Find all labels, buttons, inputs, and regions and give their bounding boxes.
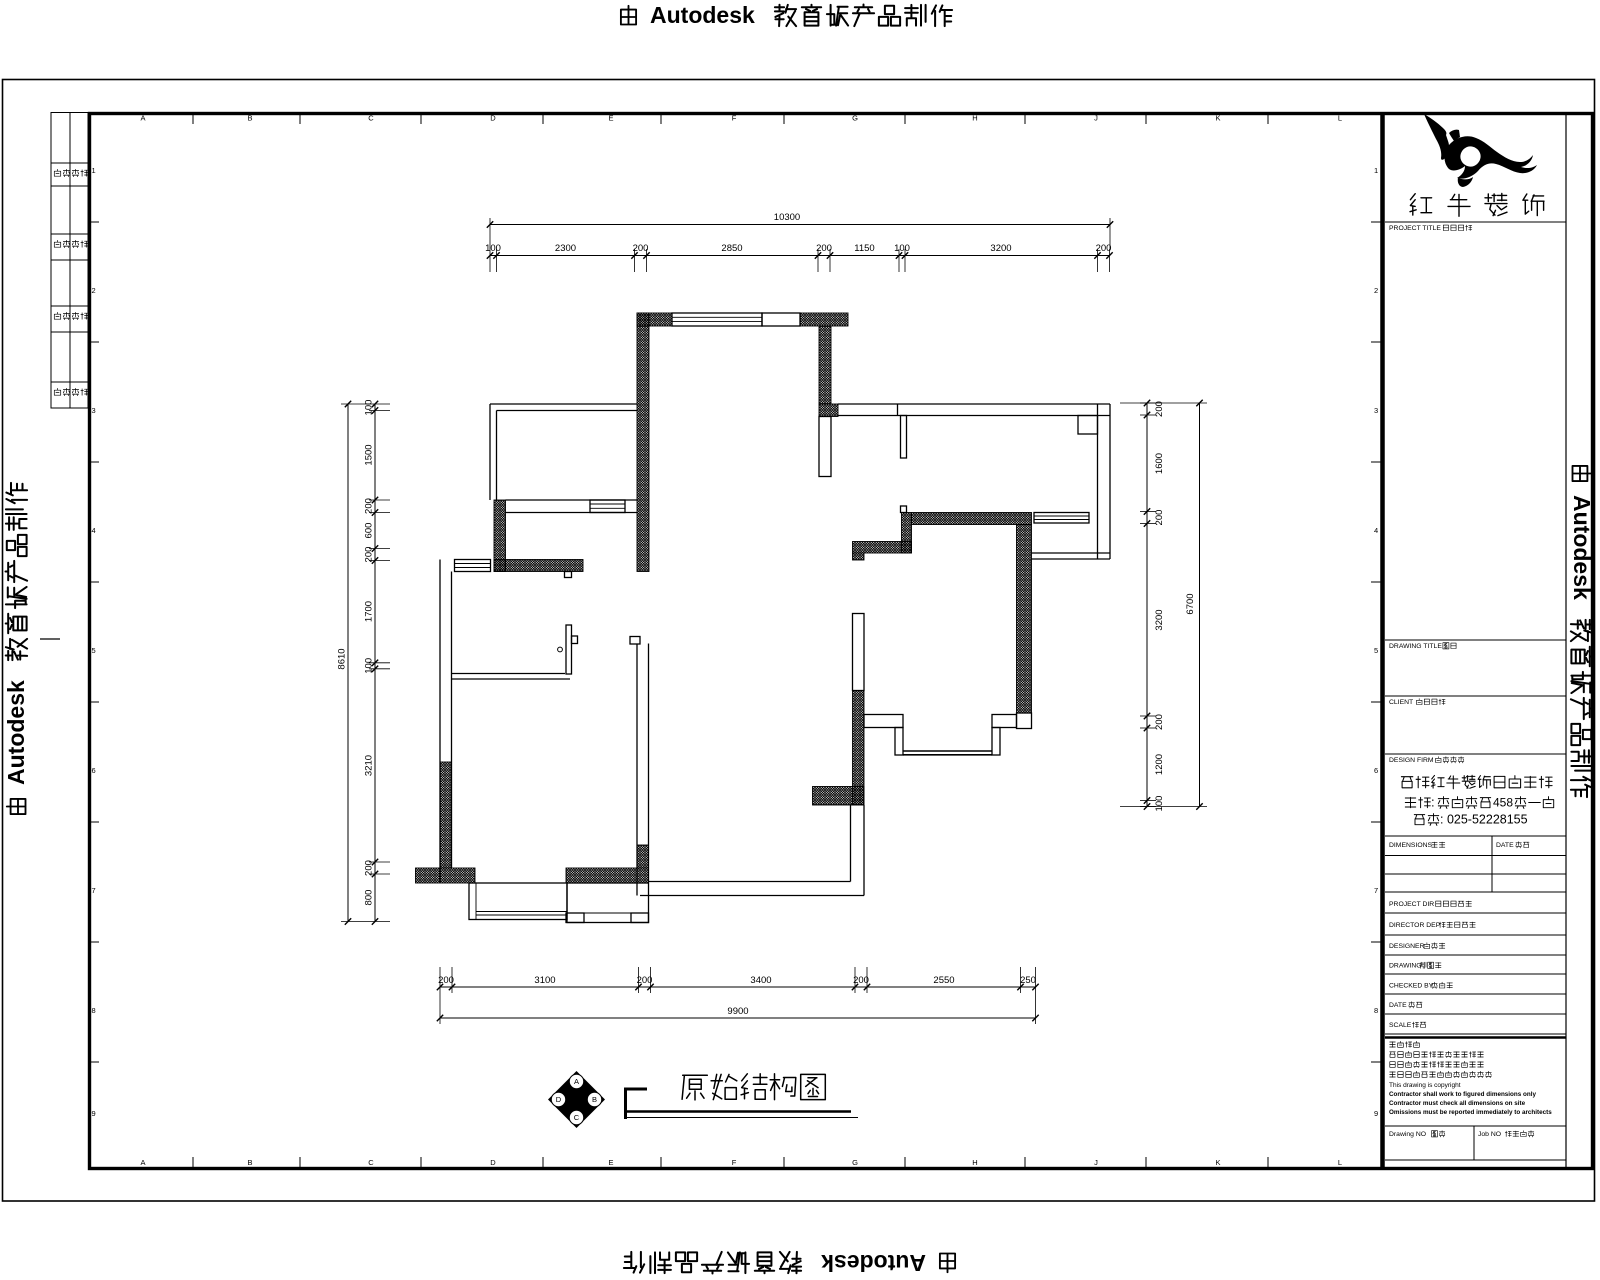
svg-text:Autodesk: Autodesk [3,680,29,785]
svg-text:2850: 2850 [721,243,742,254]
svg-text:200: 200 [637,975,653,986]
svg-text:Job NO: Job NO [1478,1131,1501,1138]
svg-text:9: 9 [1374,1109,1378,1118]
svg-text:J: J [1094,114,1098,123]
svg-text:K: K [1215,114,1220,123]
svg-text:K: K [1215,1158,1220,1167]
svg-text:1200: 1200 [1154,754,1165,775]
svg-text:2: 2 [1374,286,1378,295]
svg-text:2300: 2300 [555,243,576,254]
svg-text:8: 8 [1374,1006,1378,1015]
svg-text:200: 200 [1154,714,1165,730]
svg-text:3210: 3210 [364,755,375,776]
svg-text:A: A [140,1158,145,1167]
svg-text:B: B [592,1095,597,1104]
svg-text:6: 6 [1374,766,1378,775]
svg-text::: : [1431,795,1435,810]
svg-text:600: 600 [364,523,375,539]
svg-text:F: F [732,114,737,123]
svg-text:PROJECT DIR: PROJECT DIR [1389,901,1434,908]
svg-text:200: 200 [364,547,375,563]
svg-text:8: 8 [92,1006,96,1015]
svg-text:4: 4 [1374,526,1378,535]
svg-text:100: 100 [485,243,501,254]
svg-text:E: E [608,114,613,123]
svg-text:L: L [1338,114,1342,123]
svg-text:F: F [732,1158,737,1167]
svg-text:3400: 3400 [750,975,771,986]
svg-text:This drawing is copyright: This drawing is copyright [1389,1082,1461,1089]
svg-text:5: 5 [1374,646,1378,655]
svg-text:10300: 10300 [774,212,800,223]
svg-text:6: 6 [92,766,96,775]
svg-text:DIMENSIONS: DIMENSIONS [1389,842,1433,849]
svg-text:DIRECTOR DEP: DIRECTOR DEP [1389,922,1441,929]
svg-text:DATE: DATE [1496,842,1514,849]
svg-text:1150: 1150 [854,243,874,254]
svg-text:7: 7 [92,886,96,895]
svg-text:200: 200 [364,860,375,876]
svg-text:D: D [490,114,496,123]
svg-text:DRAWING: DRAWING [1389,963,1422,970]
svg-text:C: C [368,114,374,123]
svg-text:200: 200 [1096,243,1112,254]
svg-text:250: 250 [1020,975,1036,986]
svg-text:800: 800 [364,890,375,906]
svg-text:200: 200 [816,243,832,254]
svg-text:A: A [574,1077,579,1086]
svg-text:DESIGNER: DESIGNER [1389,943,1425,950]
svg-text:SCALE: SCALE [1389,1022,1412,1029]
svg-text:2550: 2550 [933,975,954,986]
svg-text:200: 200 [438,975,454,986]
svg-text:A: A [140,114,145,123]
svg-text:D: D [490,1158,496,1167]
svg-text:1: 1 [92,166,96,175]
svg-text:H: H [972,114,977,123]
svg-text:CHECKED BY: CHECKED BY [1389,983,1434,990]
svg-text:200: 200 [364,498,375,514]
svg-text:100: 100 [364,658,375,674]
svg-text:G: G [852,114,858,123]
svg-text:3200: 3200 [990,243,1011,254]
svg-text:7: 7 [1374,886,1378,895]
svg-text:B: B [247,114,252,123]
svg-text:100: 100 [1154,796,1165,812]
svg-text:DRAWING TITLE: DRAWING TITLE [1389,643,1442,650]
svg-text:G: G [852,1158,858,1167]
svg-text:1500: 1500 [364,444,375,465]
svg-text:L: L [1338,1158,1342,1167]
svg-text:9: 9 [92,1109,96,1118]
svg-text:C: C [368,1158,374,1167]
svg-text:200: 200 [1154,510,1165,526]
svg-text:6700: 6700 [1185,593,1196,614]
svg-text:3: 3 [92,406,96,415]
svg-text:: 025-52228155: : 025-52228155 [1440,813,1528,827]
svg-text:3: 3 [1374,406,1378,415]
svg-text:CLIENT: CLIENT [1389,699,1413,706]
svg-text:E: E [608,1158,613,1167]
svg-text:DATE: DATE [1389,1002,1407,1009]
svg-text:3100: 3100 [534,975,555,986]
svg-text:1: 1 [1374,166,1378,175]
svg-text:1700: 1700 [364,601,375,622]
svg-text:100: 100 [894,243,910,254]
svg-text:200: 200 [853,975,869,986]
svg-text:Contractor shall work to figur: Contractor shall work to figured dimensi… [1389,1091,1536,1098]
svg-text:D: D [556,1095,562,1104]
svg-text:8610: 8610 [337,648,348,669]
svg-text:200: 200 [633,243,649,254]
svg-text:Autodesk: Autodesk [821,1250,926,1276]
svg-text:458: 458 [1493,796,1513,810]
svg-text:Autodesk: Autodesk [650,2,755,28]
svg-text:4: 4 [92,526,96,535]
svg-text:Omissions must be reported imm: Omissions must be reported immediately t… [1389,1109,1552,1116]
svg-text:Drawing NO: Drawing NO [1389,1131,1426,1138]
svg-text:B: B [247,1158,252,1167]
svg-text:9900: 9900 [727,1006,748,1017]
svg-text:5: 5 [92,646,96,655]
svg-text:H: H [972,1158,977,1167]
svg-text:3200: 3200 [1154,609,1165,630]
svg-text:DESIGN FIRM: DESIGN FIRM [1389,757,1434,764]
svg-text:PROJECT TITLE: PROJECT TITLE [1389,225,1441,232]
svg-text:J: J [1094,1158,1098,1167]
svg-text:1600: 1600 [1154,453,1165,474]
svg-text:100: 100 [364,400,375,416]
svg-text:2: 2 [92,286,96,295]
svg-text:C: C [574,1113,580,1122]
svg-text:Contractor must check all dime: Contractor must check all dimensions on … [1389,1100,1526,1107]
svg-text:200: 200 [1154,401,1165,417]
